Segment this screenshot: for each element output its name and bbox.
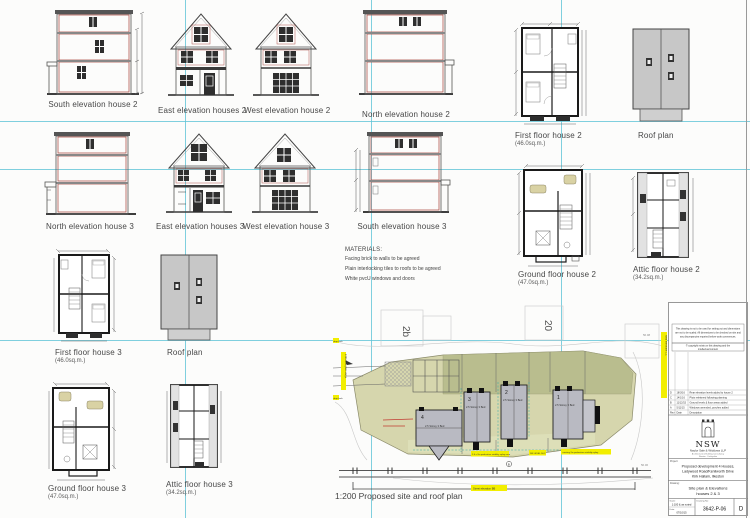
rev-header-date: Date bbox=[677, 412, 683, 415]
drawing-title-1: Site plan & Elevations bbox=[689, 486, 728, 491]
plan-ground-floor-house3-drawing bbox=[43, 381, 119, 481]
elevation-west-house3-drawing bbox=[250, 126, 320, 216]
rev-header-desc: Description bbox=[690, 412, 703, 415]
label-roof-plan-house3: Roof plan bbox=[167, 348, 203, 357]
annotation-splay2: existing 2m pedestrian visibility splay bbox=[563, 451, 600, 454]
roof-plan-house3-drawing bbox=[158, 252, 220, 346]
elevation-south-house3-drawing bbox=[351, 126, 453, 218]
label-south-elevation-house3: South elevation house 3 bbox=[352, 222, 452, 231]
roof-plan-house2-drawing bbox=[629, 26, 693, 128]
label-attic-floor-house2: Attic floor house 2 bbox=[633, 265, 700, 274]
elevation-east-houses2-drawing bbox=[166, 5, 236, 99]
annotation-verge: 2.0m wide grass verge bbox=[344, 354, 347, 379]
title-block: This drawing is not to be used for setti… bbox=[668, 302, 748, 516]
spot-level-top-right: 56.08 bbox=[643, 333, 650, 337]
project-line-3: Kirk Hallam, Ilkeston bbox=[692, 475, 724, 479]
area-ground-floor-house3: (47.0sq.m.) bbox=[48, 494, 78, 500]
project-line-2: Ladywood Road/Kenilworth Drive bbox=[682, 470, 734, 474]
area-attic-floor-house3: (34.2sq.m.) bbox=[166, 490, 196, 496]
site-plan-caption: 1:200 Proposed site and roof plan bbox=[335, 491, 463, 501]
site-house-4-type: 2.5 Storey 3 Bed bbox=[425, 424, 445, 428]
neighbour-label-20: 20 bbox=[542, 320, 553, 332]
site-house-3-type: 2.5 Storey 3 Bed bbox=[466, 405, 486, 409]
rev-0-date: 18/3/16 bbox=[677, 392, 686, 395]
date-value: 07/10/15 bbox=[676, 511, 687, 515]
annotation-road-elevation-cc: road elevation CC bbox=[665, 335, 667, 356]
neighbour-label-2b: 2b bbox=[400, 326, 411, 338]
site-plan-drawing: 2b 20 bbox=[333, 302, 667, 498]
area-first-floor-house2: (46.0sq.m.) bbox=[515, 141, 545, 147]
drawing-number-label: Drawing No: bbox=[697, 500, 709, 503]
elevation-west-house2-drawing bbox=[251, 5, 321, 99]
site-house-2-number: 2 bbox=[505, 390, 508, 396]
label-roof-plan-house2: Roof plan bbox=[638, 131, 674, 140]
drawing-label: Drawing: bbox=[670, 482, 680, 485]
project-line-1: Proposed development 4 Houses, bbox=[682, 465, 735, 469]
rear-gardens bbox=[443, 351, 633, 394]
materials-notes: MATERIALS: Facing brick to walls to be a… bbox=[345, 247, 441, 286]
firm-name: Naylor Sale & Widdows LLP bbox=[690, 448, 726, 452]
materials-line-3: White pvcU windows and doors bbox=[345, 276, 441, 282]
annotation-level: DN LEVEL 56.2 bbox=[530, 453, 546, 455]
label-first-floor-house2: First floor house 2 bbox=[515, 131, 582, 140]
label-first-floor-house3: First floor house 3 bbox=[55, 348, 122, 357]
materials-line-1: Facing brick to walls to be agreed bbox=[345, 256, 441, 262]
firm-subline-2: Ilkeston · Derbyshire bbox=[699, 455, 718, 458]
label-east-elevation-houses3: East elevation houses 3 bbox=[156, 222, 242, 231]
site-house-4-number: 4 bbox=[421, 415, 424, 421]
rev-1-letter: C bbox=[670, 397, 672, 400]
disclaimer-line-1: This drawing is not to be used for setti… bbox=[676, 328, 741, 331]
annotation-flag2: drop kerb bbox=[333, 397, 343, 400]
site-house-2-type: 2.5 Storey 3 Bed bbox=[503, 398, 523, 402]
rev-0-desc: Rear elevation levels added to house 2 bbox=[690, 392, 734, 395]
area-attic-floor-house2: (34.2sq.m.) bbox=[633, 275, 663, 281]
materials-title: MATERIALS: bbox=[345, 247, 441, 253]
site-house-2: 2 2.5 Storey 3 Bed bbox=[501, 381, 527, 447]
label-north-elevation-house2: North elevation house 2 bbox=[356, 110, 456, 119]
scale-value: 1:100 & as noted bbox=[672, 502, 692, 506]
plan-ground-floor-house2-drawing bbox=[514, 163, 594, 268]
rev-header-rev: Rev bbox=[670, 412, 675, 415]
marker-b: B bbox=[506, 461, 511, 466]
revision-letter: D bbox=[739, 507, 744, 513]
label-ground-floor-house2: Ground floor house 2 bbox=[518, 270, 596, 279]
annotation-flag1: drop kerb bbox=[333, 340, 343, 343]
date-label: Date: bbox=[670, 508, 676, 511]
plan-attic-floor-house3-drawing bbox=[164, 381, 224, 473]
svg-text:B: B bbox=[508, 462, 510, 466]
area-ground-floor-house2: (47.0sq.m.) bbox=[518, 280, 548, 286]
elevation-north-house3-drawing bbox=[40, 126, 140, 220]
label-east-elevation-houses2: East elevation houses 2 bbox=[158, 106, 244, 115]
elevation-east-houses3-drawing bbox=[164, 126, 234, 216]
materials-line-2: Plain interlocking tiles to roofs to be … bbox=[345, 266, 441, 272]
disclaimer-line-3: any discrepancies reported before work c… bbox=[680, 336, 736, 339]
copyright-line-2: intellectual content bbox=[698, 348, 718, 351]
scale-label: Scale: bbox=[670, 501, 676, 503]
site-house-1-number: 1 bbox=[557, 395, 560, 401]
rev-1-date: 14/1/16 bbox=[677, 397, 686, 400]
plan-first-floor-house2-drawing bbox=[512, 20, 588, 128]
rev-2-date: 11/12/15 bbox=[677, 402, 687, 405]
revision-box: D bbox=[739, 507, 744, 513]
site-house-3-number: 3 bbox=[468, 397, 471, 403]
rev-1-desc: Plots relettered following planning bbox=[690, 397, 728, 400]
drawing-number: 3642-P-06 bbox=[703, 507, 727, 513]
elevation-north-house2-drawing bbox=[355, 2, 457, 100]
site-house-3: 3 2.5 Storey 3 Bed bbox=[464, 388, 490, 450]
label-attic-floor-house3: Attic floor house 3 bbox=[166, 480, 233, 489]
hatched-area bbox=[385, 362, 411, 386]
drawing-sheet: South elevation house 2 East elevation h… bbox=[0, 0, 750, 518]
plan-attic-floor-house2-drawing bbox=[629, 168, 697, 263]
sheet-right-border bbox=[746, 0, 747, 518]
area-first-floor-house3: (46.0sq.m.) bbox=[55, 358, 85, 364]
label-south-elevation-house2: South elevation house 2 bbox=[41, 100, 145, 109]
rev-3-desc: Windows amended, porches added bbox=[690, 407, 730, 410]
elevation-south-house2-drawing bbox=[41, 2, 145, 100]
road bbox=[339, 468, 651, 478]
rev-0-letter: D bbox=[670, 392, 672, 395]
rev-2-desc: Ground levels & floor areas added bbox=[690, 402, 729, 405]
site-house-1-type: 2.5 Storey 3 Bed bbox=[555, 403, 575, 407]
spot-level-bottom-right: 56.06 bbox=[641, 463, 648, 467]
annotation-splay1: 2.4 x 2m pedestrian visibility splay are… bbox=[472, 453, 511, 456]
disclaimer-line-2: are not to be scaled. All dimensions to … bbox=[675, 332, 741, 335]
drawing-title-2: houses 2 & 3 bbox=[696, 491, 720, 496]
rev-3-date: 5/11/15 bbox=[677, 407, 686, 410]
plan-first-floor-house3-drawing bbox=[50, 248, 118, 343]
label-ground-floor-house3: Ground floor house 3 bbox=[48, 484, 126, 493]
annotation-street-elevation: Street elevation BB bbox=[473, 486, 495, 490]
label-north-elevation-house3: North elevation house 3 bbox=[40, 222, 140, 231]
label-west-elevation-house2: West elevation house 2 bbox=[244, 106, 328, 115]
label-west-elevation-house3: West elevation house 3 bbox=[243, 222, 327, 231]
project-label: Project: bbox=[670, 460, 678, 463]
